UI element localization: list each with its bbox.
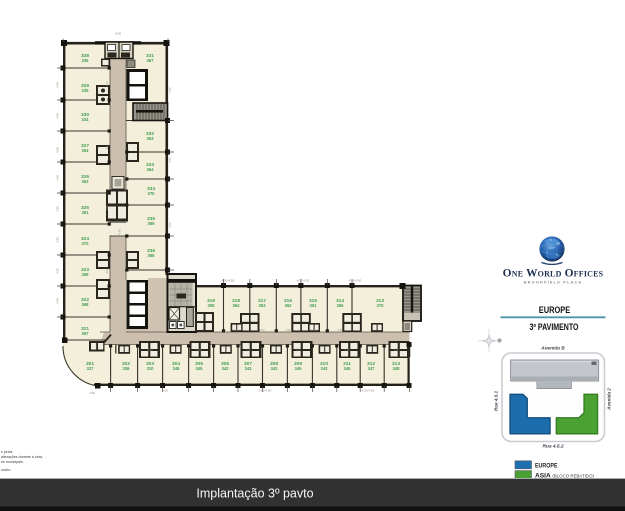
- svg-text:332363: 332363: [146, 131, 154, 141]
- svg-text:s pelas: s pelas: [1, 450, 13, 454]
- svg-text:307343: 307343: [244, 361, 252, 371]
- svg-text:333364: 333364: [146, 162, 154, 172]
- svg-text:4.50: 4.50: [56, 175, 60, 181]
- svg-text:4.50: 4.50: [147, 348, 153, 352]
- svg-text:4.50 4.50: 4.50 4.50: [362, 389, 375, 393]
- svg-text:4.50: 4.50: [105, 268, 109, 274]
- svg-text:312347: 312347: [367, 361, 375, 371]
- svg-text:311345: 311345: [343, 361, 351, 371]
- svg-text:6.45: 6.45: [115, 32, 121, 36]
- svg-text:322368: 322368: [81, 297, 89, 307]
- svg-text:4.50: 4.50: [56, 113, 60, 119]
- svg-text:4.50 4.50: 4.50 4.50: [297, 279, 310, 283]
- svg-text:301327: 301327: [86, 361, 94, 371]
- svg-text:Implantação 3º pavto: Implantação 3º pavto: [196, 487, 313, 501]
- svg-text:Avenida B: Avenida B: [540, 346, 565, 352]
- svg-text:4.50: 4.50: [162, 389, 168, 393]
- svg-text:4.50: 4.50: [295, 348, 301, 352]
- svg-text:4.50: 4.50: [344, 348, 350, 352]
- svg-text:305345: 305345: [195, 361, 203, 371]
- svg-text:4.90: 4.90: [89, 391, 95, 395]
- svg-text:313370: 313370: [376, 298, 384, 308]
- svg-text:4.50: 4.50: [393, 348, 399, 352]
- svg-text:4.50: 4.50: [56, 206, 60, 212]
- svg-text:oudro.: oudro.: [1, 468, 11, 472]
- svg-text:328336: 328336: [81, 53, 89, 63]
- svg-text:323369: 323369: [81, 267, 89, 277]
- svg-text:325361: 325361: [81, 205, 89, 215]
- svg-text:es municipais.: es municipais.: [1, 460, 24, 464]
- svg-text:4.75: 4.75: [118, 229, 122, 235]
- svg-text:309345: 309345: [294, 361, 302, 371]
- svg-text:324370: 324370: [81, 236, 89, 246]
- svg-text:336368: 336368: [147, 248, 155, 258]
- svg-text:308342: 308342: [270, 361, 278, 371]
- svg-text:318364: 318364: [232, 298, 240, 308]
- svg-text:4.50: 4.50: [56, 237, 60, 243]
- svg-text:302336: 302336: [122, 361, 130, 371]
- svg-text:329335: 329335: [81, 83, 89, 93]
- svg-text:331367: 331367: [146, 53, 154, 63]
- svg-text:4.50: 4.50: [56, 147, 60, 153]
- svg-text:4.50: 4.50: [168, 157, 172, 163]
- svg-text:303310: 303310: [146, 361, 154, 371]
- svg-text:315361: 315361: [309, 298, 317, 308]
- svg-text:4.50: 4.50: [105, 144, 109, 150]
- svg-text:319306: 319306: [207, 298, 215, 308]
- svg-text:4.50: 4.50: [196, 348, 202, 352]
- svg-text:326362: 326362: [81, 174, 89, 184]
- svg-text:EUROPE: EUROPE: [535, 462, 558, 469]
- svg-text:4.50 4.50: 4.50 4.50: [259, 389, 272, 393]
- svg-text:4.50: 4.50: [310, 328, 316, 332]
- svg-text:4.50: 4.50: [168, 222, 172, 228]
- svg-text:4.50: 4.50: [337, 328, 343, 332]
- svg-text:4.50 4.50: 4.50 4.50: [222, 279, 235, 283]
- svg-text:4.50: 4.50: [56, 82, 60, 88]
- svg-text:alterações durante a obra,: alterações durante a obra,: [1, 455, 43, 459]
- svg-text:4.50: 4.50: [259, 328, 265, 332]
- svg-text:4.50 4.50: 4.50 4.50: [349, 279, 362, 283]
- svg-text:316362: 316362: [284, 298, 292, 308]
- svg-text:4.50: 4.50: [56, 268, 60, 274]
- svg-text:Rua 4.5.2: Rua 4.5.2: [542, 444, 563, 450]
- svg-text:330334: 330334: [81, 112, 89, 122]
- svg-text:321367: 321367: [81, 326, 89, 336]
- svg-text:334370: 334370: [147, 186, 155, 196]
- svg-text:310343: 310343: [320, 361, 328, 371]
- svg-text:304348: 304348: [172, 361, 180, 371]
- svg-text:317363: 317363: [258, 298, 266, 308]
- svg-text:4.50: 4.50: [105, 205, 109, 211]
- svg-text:Rua 4.5.1: Rua 4.5.1: [494, 390, 499, 411]
- svg-text:335369: 335369: [147, 216, 155, 226]
- svg-text:314356: 314356: [336, 298, 344, 308]
- svg-text:4.50: 4.50: [245, 348, 251, 352]
- svg-text:4.50: 4.50: [285, 328, 291, 332]
- svg-text:Avenida 2: Avenida 2: [607, 388, 612, 411]
- svg-text:4.50: 4.50: [233, 328, 239, 332]
- svg-text:306342: 306342: [221, 361, 229, 371]
- svg-text:3º PAVIMENTO: 3º PAVIMENTO: [530, 322, 579, 332]
- svg-text:BROOKFIELD PLACE: BROOKFIELD PLACE: [524, 279, 583, 284]
- svg-text:4.50: 4.50: [56, 298, 60, 304]
- svg-text:EUROPE: EUROPE: [539, 305, 571, 315]
- svg-text:4.50: 4.50: [168, 87, 172, 93]
- svg-text:313348: 313348: [392, 361, 400, 371]
- svg-text:4.50: 4.50: [105, 81, 109, 87]
- svg-text:One World Offices: One World Offices: [503, 268, 604, 280]
- svg-text:327363: 327363: [81, 143, 89, 153]
